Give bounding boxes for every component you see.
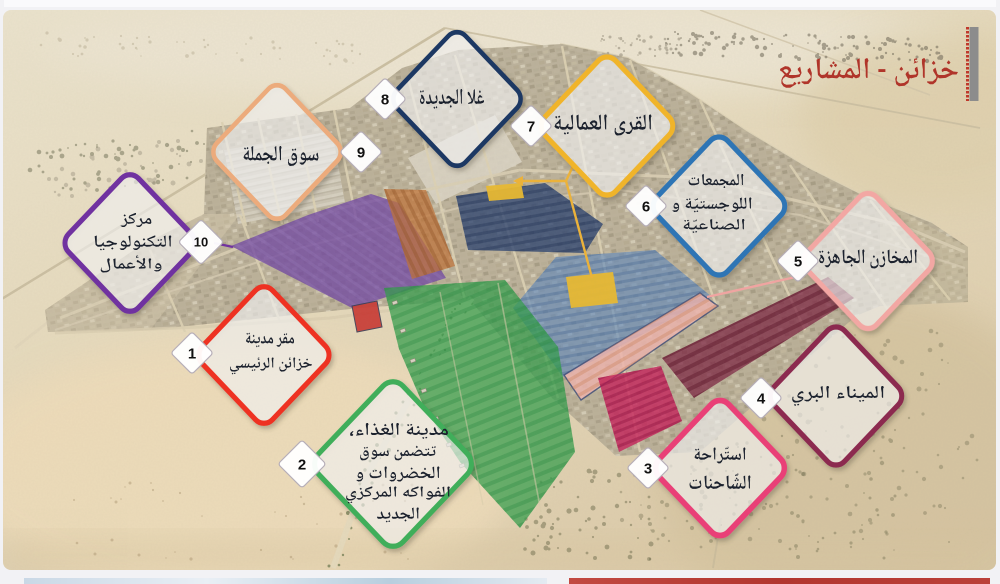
svg-text:2: 2 (298, 456, 306, 473)
svg-text:7: 7 (527, 118, 535, 135)
svg-text:4: 4 (757, 390, 766, 407)
svg-text:5: 5 (794, 253, 802, 270)
svg-text:3: 3 (644, 460, 652, 477)
svg-text:10: 10 (194, 235, 208, 250)
svg-text:8: 8 (381, 91, 389, 108)
svg-text:9: 9 (357, 144, 365, 161)
svg-text:6: 6 (642, 198, 650, 215)
svg-text:1: 1 (188, 345, 196, 362)
